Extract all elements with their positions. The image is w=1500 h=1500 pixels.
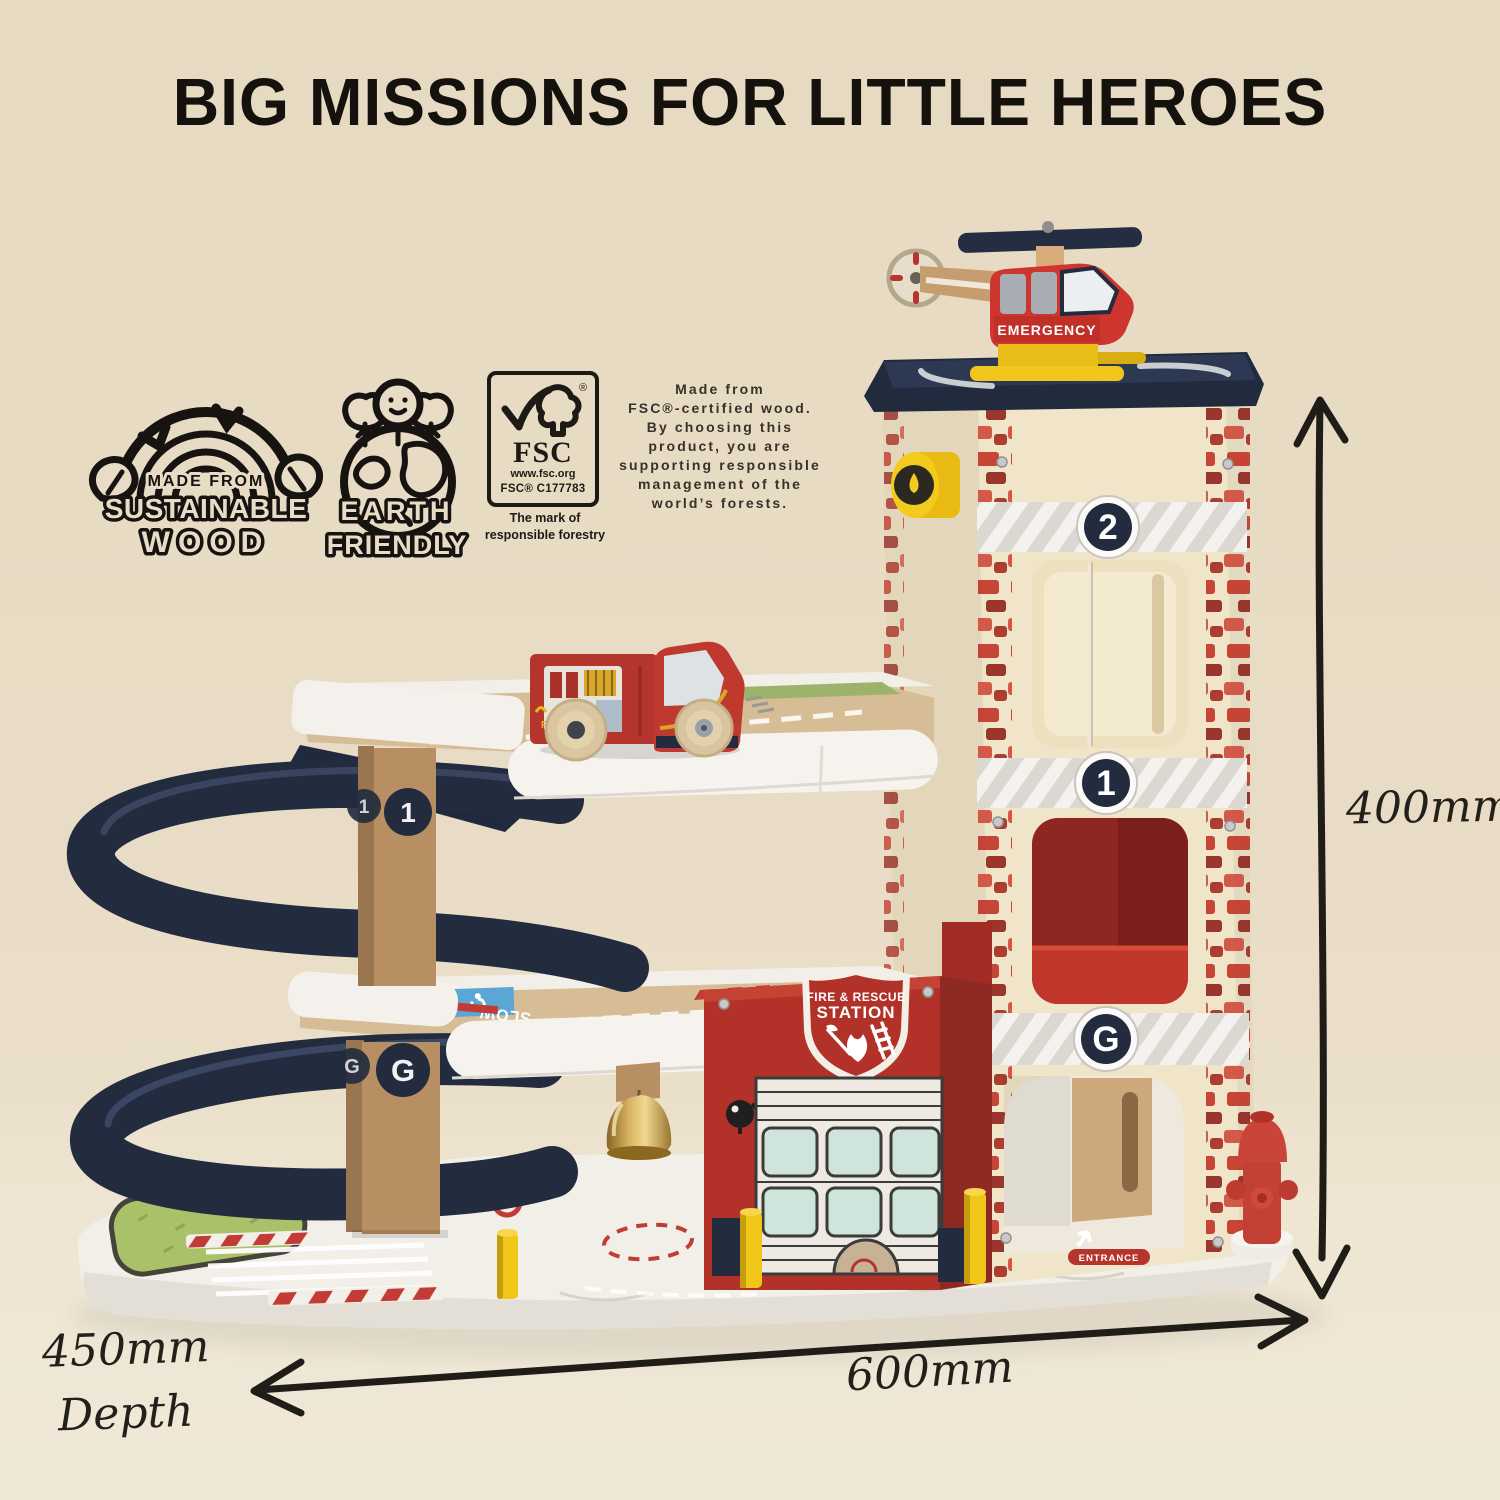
truck-front-wheel	[676, 700, 732, 756]
post-g-label: G	[391, 1053, 415, 1088]
windshield	[1062, 268, 1117, 314]
winch-knob	[891, 452, 960, 518]
side-window	[1000, 274, 1026, 314]
post-1-side-label: 1	[359, 797, 370, 818]
elevator-platform	[1030, 948, 1190, 1004]
helicopter: EMERGENCY	[889, 221, 1146, 381]
height-dimension-label: 400mm	[1346, 781, 1500, 835]
floor-band-1: 1	[977, 752, 1247, 814]
width-dimension-label: 600mm	[845, 1342, 1015, 1402]
interior-wall	[1072, 1078, 1152, 1222]
support-post-ground: G G	[334, 1040, 448, 1238]
side-window	[1031, 272, 1057, 314]
truck-rear-wheel	[546, 700, 606, 760]
shield-line2: STATION	[816, 1003, 895, 1022]
yellow-peg	[497, 1229, 518, 1299]
floor-2-label: 2	[1098, 508, 1117, 547]
toy-fire-station-photo: 2 1	[0, 0, 1500, 1500]
tower-window-upper	[1032, 560, 1188, 748]
fire-truck: FIRE	[530, 642, 745, 760]
helicopter-emergency-label: EMERGENCY	[997, 322, 1096, 338]
post-g-side-label: G	[344, 1056, 360, 1078]
brass-bell	[607, 1062, 672, 1160]
tower-window-lower	[1030, 818, 1190, 1004]
entrance-label: ENTRANCE	[1079, 1253, 1140, 1264]
floor-band-ground: G	[977, 1007, 1249, 1071]
floor-band-2: 2	[977, 496, 1247, 558]
support-post-level1: 1 1	[347, 746, 436, 986]
floor-1-label: 1	[1096, 764, 1115, 803]
depth-caption-label: Depth	[57, 1386, 194, 1442]
depth-dimension-label: 450mm	[41, 1321, 210, 1378]
height-dimension-arrow	[1296, 400, 1347, 1296]
post-1-label: 1	[400, 797, 416, 828]
garage-shutter-door	[756, 1078, 942, 1274]
product-infographic: BIG MISSIONS FOR LITTLE HEROES MADE FROM…	[0, 0, 1500, 1500]
floor-g-label: G	[1092, 1020, 1119, 1059]
ladder-detail	[584, 670, 616, 696]
shield-line1: FIRE & RESCUE	[806, 990, 905, 1004]
tower-archway: ENTRANCE	[1004, 1076, 1184, 1265]
